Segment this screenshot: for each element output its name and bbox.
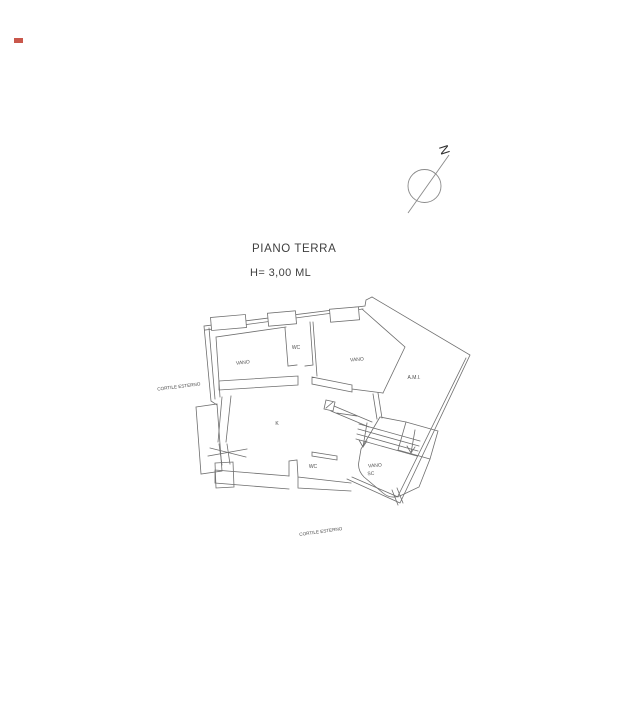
floor-plan-drawing: N: [0, 0, 619, 720]
room-label-vano-top-right: VANO: [350, 357, 364, 364]
room-label-stair-line2: SC: [367, 471, 375, 477]
north-label: N: [436, 143, 453, 157]
room-label-wc-top: WC: [292, 345, 301, 351]
room-label-ami: A.M.I.: [407, 375, 420, 381]
courtyard-label-left: CORTILE ESTERNO: [157, 381, 201, 391]
drawing-sheet: PIANO TERRA H= 3,00 ML N: [0, 0, 619, 720]
north-arrow-icon: [408, 155, 449, 213]
room-label-wc-bottom: WC: [309, 464, 318, 470]
courtyard-label-bottom: CORTILE ESTERNO: [299, 526, 343, 537]
room-label-vano-top-left: VANO: [236, 359, 250, 366]
room-label-stair-line1: VANO: [368, 463, 382, 470]
room-label-kitchen: K: [275, 421, 279, 427]
